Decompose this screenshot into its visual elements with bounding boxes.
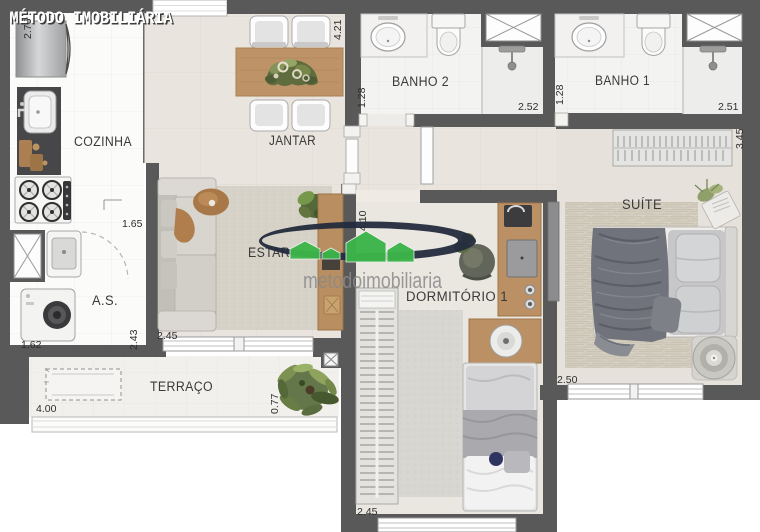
svg-text:TERRAÇO: TERRAÇO <box>150 379 213 394</box>
svg-text:2.45: 2.45 <box>357 506 378 518</box>
svg-text:metodoimobiliaria: metodoimobiliaria <box>303 268 443 293</box>
svg-text:MÉTODO IMOBILIÁRIA: MÉTODO IMOBILIÁRIA <box>10 7 173 29</box>
svg-text:BANHO 1: BANHO 1 <box>595 73 650 88</box>
svg-text:1.28: 1.28 <box>554 84 566 105</box>
svg-text:SUÍTE: SUÍTE <box>622 197 662 212</box>
svg-text:2.43: 2.43 <box>128 329 140 350</box>
svg-text:2.52: 2.52 <box>518 101 539 113</box>
svg-text:2.45: 2.45 <box>157 330 178 342</box>
svg-text:COZINHA: COZINHA <box>74 134 132 149</box>
svg-text:JANTAR: JANTAR <box>269 133 316 148</box>
svg-text:4.00: 4.00 <box>36 403 57 415</box>
svg-text:2.51: 2.51 <box>718 101 739 113</box>
svg-text:4.21: 4.21 <box>332 19 344 40</box>
svg-text:BANHO 2: BANHO 2 <box>392 74 449 89</box>
svg-text:1.62: 1.62 <box>21 339 42 351</box>
svg-text:3.45: 3.45 <box>734 128 746 149</box>
svg-text:2.50: 2.50 <box>557 374 578 386</box>
svg-text:0.77: 0.77 <box>269 393 281 414</box>
svg-text:1.65: 1.65 <box>122 218 143 230</box>
svg-text:A.S.: A.S. <box>92 293 118 308</box>
svg-text:1.28: 1.28 <box>356 87 368 108</box>
